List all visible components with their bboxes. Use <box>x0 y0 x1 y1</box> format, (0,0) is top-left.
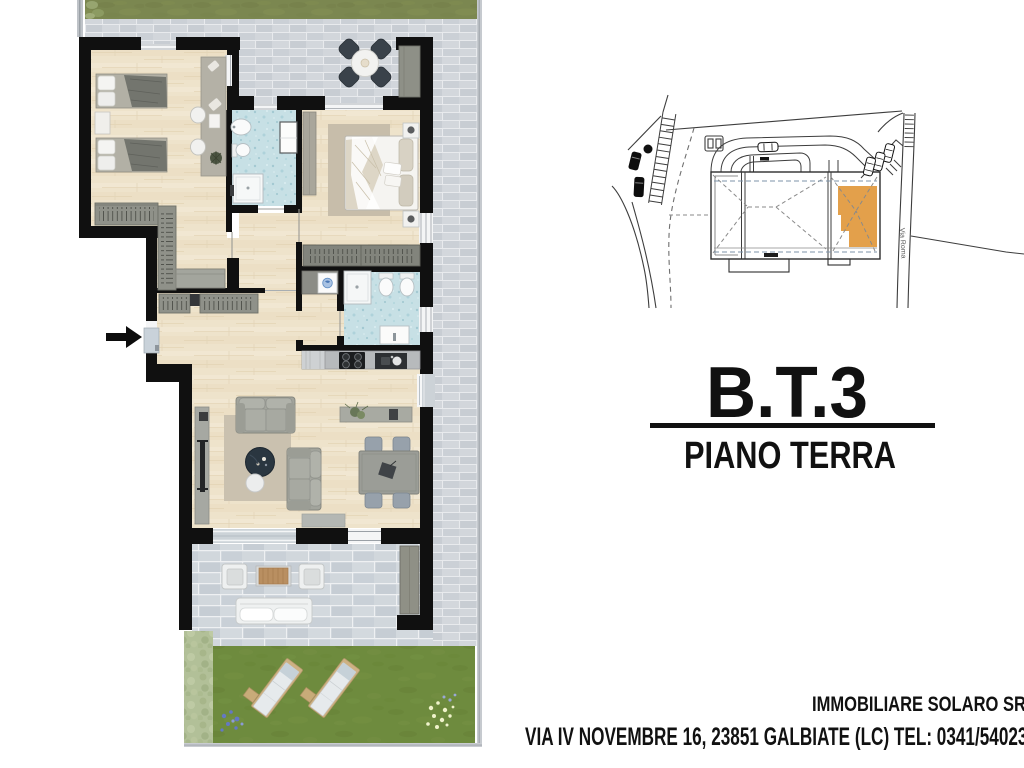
svg-text:VIA IV NOVEMBRE 16, 23851 GALB: VIA IV NOVEMBRE 16, 23851 GALBIATE (LC) … <box>525 723 1024 751</box>
svg-text:IMMOBILIARE SOLARO SRL: IMMOBILIARE SOLARO SRL <box>812 693 1024 716</box>
svg-text:PIANO TERRA: PIANO TERRA <box>684 435 896 477</box>
svg-text:B.T.3: B.T.3 <box>706 353 868 433</box>
